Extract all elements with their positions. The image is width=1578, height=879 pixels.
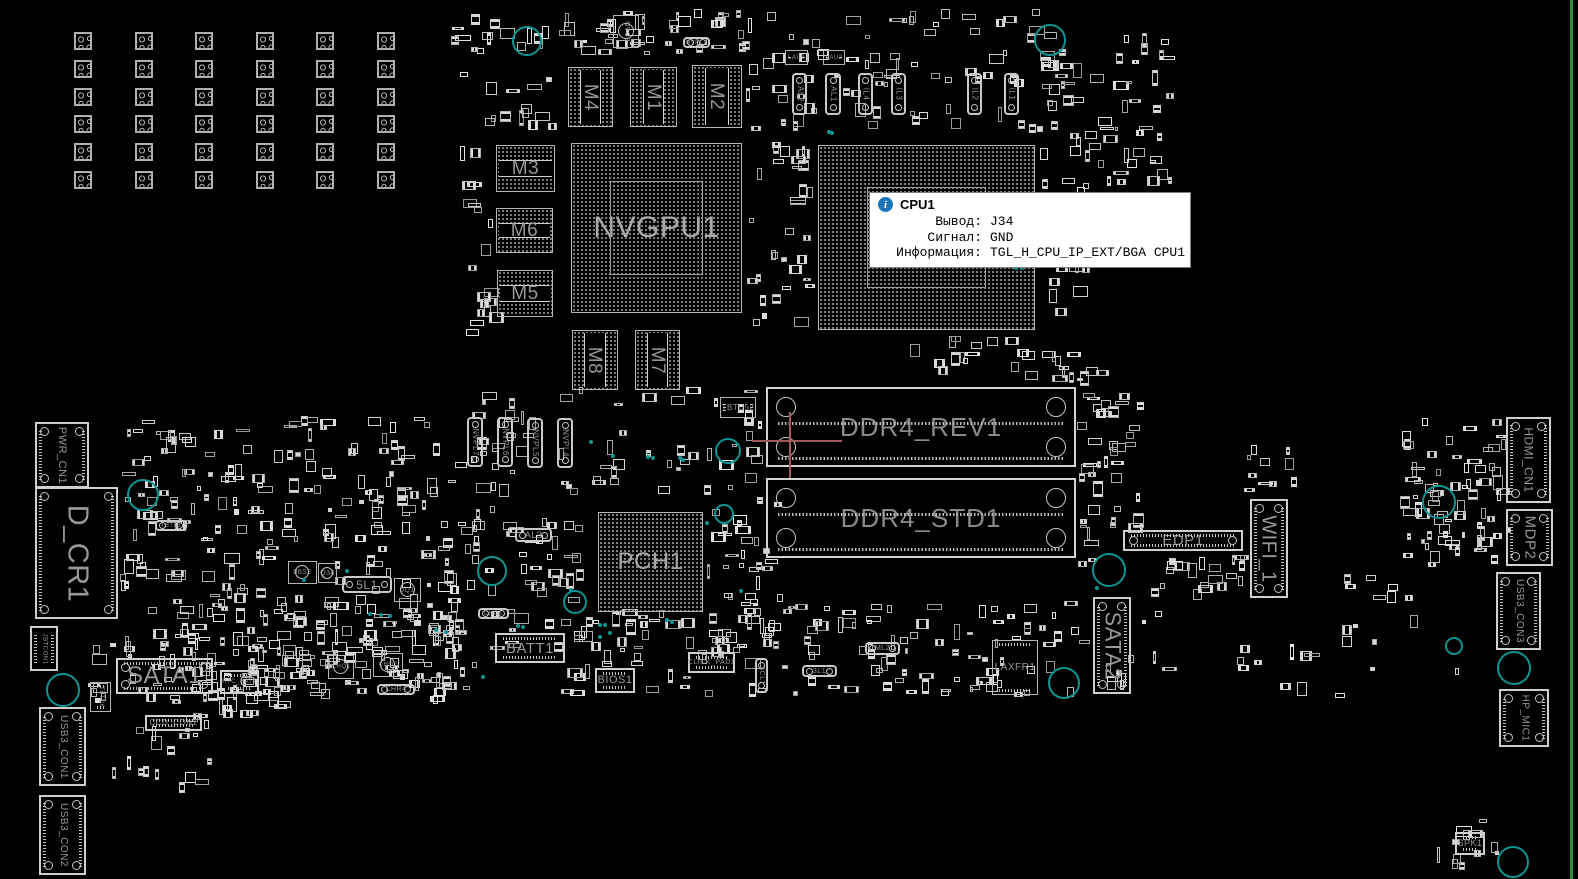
via (1034, 24, 1066, 56)
component-ddr4_rev1[interactable]: DDR4_REV1 (766, 387, 1076, 467)
boardview-canvas[interactable]: i CPU1 Вывод: J34 Сигнал: GND Информация… (0, 0, 1578, 879)
smd-pad (570, 690, 585, 696)
smd-pad (875, 81, 883, 86)
smd-pad (262, 556, 276, 561)
smd-pad (258, 647, 264, 661)
component-usb3_con2[interactable]: USB3_CON2 (39, 795, 86, 875)
component-label: D_CR1 (62, 504, 91, 602)
component-label: 3L1 (813, 668, 826, 675)
component-il2[interactable]: IL2 (967, 73, 982, 115)
smd-pad (1247, 455, 1251, 460)
smd-pad (260, 521, 274, 531)
smd-pad (220, 637, 225, 646)
smd-pad (355, 535, 366, 541)
smd-pad (1039, 625, 1047, 631)
smd-pad (247, 627, 255, 634)
smd-pad (1481, 508, 1486, 518)
smd-pad (754, 608, 761, 616)
smd-pad (305, 449, 314, 460)
pin-row (1503, 697, 1506, 739)
component-label: BATT1 (506, 641, 554, 656)
smd-pad (1428, 562, 1436, 567)
component-m7[interactable]: M7 (635, 330, 680, 390)
smd-pad (906, 690, 917, 694)
component-q34[interactable]: Q34 (318, 563, 337, 583)
component-pwr_cn1[interactable]: PWR_CN1 (35, 422, 89, 488)
test-point (481, 675, 485, 679)
pad-ring (532, 422, 539, 429)
smd-pad (470, 320, 484, 325)
via (1445, 637, 1463, 655)
smd-pad (1291, 477, 1297, 487)
test-point (681, 458, 685, 462)
smd-pad (144, 456, 151, 461)
pin-row (39, 495, 42, 611)
smd-pad (358, 475, 364, 490)
smd-pad (542, 26, 549, 39)
smd-pad (508, 609, 515, 614)
smd-pad (843, 88, 850, 96)
label-band: M6 (499, 223, 550, 239)
smd-pad (277, 701, 291, 709)
mounting-pad (195, 32, 213, 50)
smd-pad (762, 566, 772, 572)
smd-pad (585, 664, 590, 679)
component-nvpl7[interactable]: NVPL7 (467, 417, 483, 467)
smd-pad (1344, 574, 1351, 584)
smd-pad (1060, 63, 1073, 69)
smd-pad (1122, 100, 1128, 113)
component-ddr4_std1[interactable]: DDR4_STD1 (766, 478, 1076, 558)
test-point (598, 623, 602, 627)
mounting-pad (377, 32, 395, 50)
component-3cl1[interactable]: 3CL1 (755, 658, 768, 693)
component-hp_mic1[interactable]: HP_MIC1 (1499, 689, 1549, 747)
smd-pad (1280, 683, 1290, 690)
smd-pad (1114, 506, 1121, 512)
component-m3[interactable]: M3 (496, 145, 555, 192)
pad-ring (380, 657, 395, 672)
smd-pad (510, 470, 514, 474)
smd-pad (1129, 99, 1142, 102)
smd-pad (1087, 527, 1091, 540)
smd-pad (1497, 490, 1501, 500)
smd-pad (1043, 642, 1056, 647)
component-chq2[interactable]: CHQ2 (373, 653, 403, 677)
smd-pad (295, 452, 301, 457)
smd-pad (422, 679, 432, 683)
smd-pad (642, 16, 645, 25)
component-nvpl6[interactable]: NVPL6 (497, 417, 513, 467)
component-label: USB3_CON3 (1514, 579, 1524, 643)
smd-pad (642, 393, 657, 402)
smd-pad (342, 626, 352, 636)
component-ml2[interactable]: ML2 (865, 642, 900, 655)
component-wifi_1[interactable]: WIFI_1 (1250, 499, 1288, 598)
smd-pad (359, 500, 364, 505)
smd-pad (1453, 854, 1460, 865)
pin-row (778, 513, 1064, 516)
component-m4[interactable]: M4 (568, 67, 613, 127)
smd-pad (1425, 543, 1429, 550)
smd-pad (738, 615, 748, 623)
smd-pad (769, 620, 775, 632)
smd-pad (909, 16, 914, 25)
component-batt1[interactable]: BATT1 (495, 633, 565, 663)
component-label: HDMI_CN1 (1523, 427, 1535, 492)
smd-pad (467, 182, 482, 187)
pad-ring (830, 77, 837, 84)
smd-pad (865, 35, 870, 39)
smd-pad (916, 619, 930, 628)
smd-pad (327, 603, 331, 610)
pin-row (696, 666, 727, 669)
smd-pad (126, 641, 131, 657)
smd-pad (970, 28, 980, 35)
smd-pad (519, 552, 527, 557)
smd-pad (468, 203, 481, 207)
component-5l1[interactable]: 5L1 (342, 576, 392, 593)
component-label: HP_MIC1 (1519, 695, 1529, 742)
smd-pad (922, 679, 929, 694)
smd-pad (748, 18, 752, 33)
smd-pad (142, 420, 155, 424)
smd-pad (792, 166, 802, 169)
smd-pad (530, 566, 542, 569)
smd-pad (466, 329, 480, 336)
component-sata2[interactable]: SATA2 (1093, 597, 1131, 694)
smd-pad (287, 450, 293, 459)
component-m2[interactable]: M2 (692, 65, 742, 128)
smd-pad (433, 695, 439, 704)
smd-pad (421, 550, 435, 560)
smd-pad (842, 610, 856, 615)
smd-pad (92, 654, 107, 664)
smd-pad (1076, 137, 1080, 147)
smd-pad (437, 672, 442, 679)
smd-pad (409, 659, 424, 663)
smd-pad (188, 633, 197, 644)
component-label: RTC_BATT (222, 679, 256, 685)
mounting-pad (135, 143, 153, 161)
smd-pad (447, 573, 457, 586)
smd-pad (976, 677, 992, 685)
smd-pad (777, 594, 783, 602)
smd-pad (330, 613, 337, 627)
smd-pad (760, 295, 766, 306)
smd-pad (919, 112, 928, 119)
pad-ring (159, 522, 166, 529)
component-jbtcon1[interactable]: JBTCON1 (30, 626, 58, 671)
component-tbtu6[interactable]: TBTU6 (90, 682, 111, 712)
pad-ring (971, 104, 978, 111)
test-point (670, 620, 674, 624)
smd-pad (274, 609, 283, 614)
component-nvpl1[interactable]: NVPL1 (683, 37, 710, 48)
pin-row (503, 656, 557, 659)
smd-pad (389, 471, 394, 477)
smd-pad (745, 473, 757, 483)
component-lau2[interactable]: LAU2 (823, 50, 845, 65)
smd-pad (222, 583, 231, 591)
smd-pad (537, 588, 547, 596)
pad-ring (532, 457, 539, 464)
test-point (589, 440, 593, 444)
pin-row (826, 57, 829, 58)
smd-pad (873, 106, 881, 118)
smd-pad (873, 72, 883, 78)
smd-pad (233, 497, 238, 506)
component-ccd_con1[interactable]: CCD_CON1 (145, 715, 202, 731)
component-m8[interactable]: M8 (572, 330, 618, 390)
smd-pad (634, 646, 643, 649)
smd-pad (248, 646, 258, 652)
component-al3[interactable]: AL3 (515, 528, 552, 542)
component-tbtu52[interactable]: TBTU52 (720, 397, 756, 418)
smd-pad (793, 691, 799, 696)
component-label: PWR_CN1 (57, 426, 68, 483)
smd-pad (736, 10, 741, 19)
smd-pad (460, 146, 466, 161)
smd-pad (591, 642, 600, 651)
smd-pad (1107, 176, 1112, 186)
mounting-pad (256, 88, 274, 106)
smd-pad (1124, 148, 1129, 164)
smd-pad (1455, 668, 1459, 676)
smd-pad (166, 574, 181, 583)
smd-pad (793, 121, 799, 131)
component-d_cr1[interactable]: D_CR1 (35, 487, 118, 619)
component-laxfr1[interactable]: LAXFR1 (992, 640, 1038, 695)
smd-pad (722, 13, 729, 16)
smd-pad (227, 697, 237, 712)
smd-pad (445, 558, 449, 566)
mounting-pad (256, 60, 274, 78)
component-m6[interactable]: M6 (496, 208, 553, 253)
smd-pad (951, 352, 960, 366)
smd-pad (887, 605, 893, 613)
component-pch1[interactable]: PCH1 (598, 512, 703, 612)
pad-ring (830, 104, 837, 111)
info-value: TGL_H_CPU_IP_EXT/BGA CPU1 (990, 245, 1185, 261)
smd-pad (151, 511, 163, 519)
smd-pad (433, 611, 443, 619)
pin-value: J34 (990, 214, 1013, 230)
mounting-pad (195, 60, 213, 78)
component-nvpl4[interactable]: NVPL4 (557, 418, 573, 468)
smd-pad (1151, 588, 1159, 596)
component-3l1[interactable]: 3L1 (802, 665, 837, 677)
component-chr4[interactable]: CHR4 (377, 684, 415, 695)
pad-ring (176, 522, 183, 529)
via (714, 504, 734, 524)
component-nvgpu1[interactable]: NVGPU1 (571, 143, 742, 313)
pin-row (43, 715, 46, 778)
component-edp1[interactable]: EDP1 (1123, 530, 1243, 551)
smd-pad (295, 595, 303, 603)
smd-pad (488, 219, 493, 228)
smd-pad (1025, 371, 1037, 380)
smd-pad (1422, 418, 1428, 426)
smd-pad (371, 525, 383, 535)
smd-pad (558, 578, 568, 588)
pad-ring (333, 659, 348, 674)
smd-pad (1133, 513, 1144, 528)
smd-pad (876, 668, 883, 672)
smd-pad (204, 494, 208, 501)
smd-pad (160, 641, 170, 648)
mounting-pad (195, 171, 213, 189)
component-mdp2[interactable]: MDP2 (1506, 509, 1553, 566)
smd-pad (460, 72, 468, 77)
smd-pad (294, 536, 298, 542)
smd-pad (559, 30, 571, 36)
smd-pad (803, 39, 809, 46)
component-chq1[interactable]: CHQ1 (328, 655, 354, 679)
component-bios1[interactable]: BIOS1 (595, 668, 635, 693)
test-point (705, 521, 709, 525)
smd-pad (1342, 636, 1353, 647)
component-label: BIOS1 (598, 675, 633, 686)
smd-pad (1055, 356, 1061, 366)
smd-pad (707, 564, 711, 579)
smd-pad (782, 286, 791, 290)
smd-pad (1445, 540, 1460, 546)
component-rtc_batt[interactable]: RTC_BATT (220, 670, 259, 694)
component-tbtl3[interactable]: TBTL3 (155, 520, 187, 531)
smd-pad (725, 554, 739, 558)
smd-pad (132, 459, 145, 465)
smd-pad (378, 546, 387, 552)
pin-row (1500, 580, 1503, 642)
smd-pad (208, 472, 213, 478)
component-chck[interactable]: CHCK (478, 608, 509, 619)
smd-pad (1088, 438, 1101, 446)
smd-pad (945, 77, 952, 83)
test-point (379, 613, 383, 617)
smd-pad (626, 619, 636, 635)
component-al2[interactable]: AL2 (792, 73, 807, 115)
smd-pad (1079, 640, 1090, 643)
mounting-pad (135, 88, 153, 106)
smd-pad (386, 477, 391, 488)
mounting-pad (135, 60, 153, 78)
label-band: M7 (647, 333, 668, 387)
smd-pad (424, 662, 432, 667)
component-sata1[interactable]: SATA1 (116, 658, 213, 694)
smd-pad (1496, 435, 1507, 438)
smd-pad (1480, 526, 1484, 542)
component-hdmi_cn1[interactable]: HDMI_CN1 (1506, 417, 1551, 503)
smd-pad (1018, 120, 1025, 129)
component-m5[interactable]: M5 (497, 270, 553, 317)
smd-pad (933, 22, 940, 26)
mounting-pad (377, 143, 395, 161)
smd-pad (378, 495, 384, 505)
pad-ring (1046, 397, 1066, 417)
smd-pad (1467, 459, 1482, 464)
smd-pad (808, 676, 816, 686)
pad-ring (862, 104, 869, 111)
test-point (611, 454, 615, 458)
smd-pad (704, 485, 710, 495)
smd-pad (366, 619, 372, 627)
label-band: M5 (500, 285, 550, 301)
smd-pad (576, 569, 584, 582)
smd-pad (277, 631, 292, 640)
smd-pad (658, 486, 670, 494)
component-5q1[interactable]: 5Q1 (394, 578, 421, 602)
smd-pad (414, 620, 420, 626)
smd-pad (867, 620, 872, 624)
component-al1[interactable]: AL1 (825, 73, 841, 115)
component-il4[interactable]: IL4 (858, 73, 873, 115)
smd-pad (124, 581, 129, 589)
smd-pad (902, 18, 907, 23)
smd-pad (1040, 148, 1048, 160)
pin-row (750, 404, 753, 411)
pin-row (696, 656, 727, 659)
smd-pad (686, 637, 694, 649)
smd-pad (1085, 131, 1096, 139)
smd-pad (912, 116, 920, 125)
smd-pad (199, 604, 203, 618)
component-spk1[interactable]: SPK1 (1455, 832, 1485, 855)
pad-ring (776, 528, 796, 548)
smd-pad (1290, 644, 1294, 660)
smd-pad (195, 779, 209, 785)
component-lau3[interactable]: LAU3 (785, 50, 808, 65)
test-point (608, 631, 612, 635)
test-point (521, 625, 525, 629)
smd-pad (1437, 847, 1440, 863)
smd-pad (1083, 393, 1095, 398)
smd-pad (760, 618, 765, 634)
component-click_pad1[interactable]: CLICK_PAD1 (688, 652, 735, 673)
smd-pad (552, 536, 557, 550)
smd-pad (1260, 458, 1270, 465)
via (46, 673, 80, 707)
smd-pad (397, 487, 412, 490)
smd-pad (1111, 461, 1124, 465)
component-nvc2[interactable]: NVC2 (613, 15, 639, 48)
pin-row (778, 548, 1064, 551)
mounting-pad (74, 60, 92, 78)
smd-pad (634, 653, 641, 661)
mounting-pad (195, 143, 213, 161)
smd-pad (910, 632, 918, 638)
component-nvpl5[interactable]: NVPL5 (527, 418, 543, 468)
smd-pad (683, 676, 692, 679)
component-usb3_con3[interactable]: USB3_CON3 (1496, 572, 1541, 650)
mounting-pad (377, 88, 395, 106)
smd-pad (310, 692, 323, 697)
smd-pad (910, 111, 914, 115)
smd-pad (1403, 441, 1413, 449)
smd-pad (546, 77, 551, 82)
smd-pad (1162, 667, 1177, 671)
smd-pad (1126, 432, 1134, 440)
smd-pad (900, 637, 908, 644)
component-il1[interactable]: IL1 (1004, 73, 1019, 115)
component-il3[interactable]: IL3 (891, 73, 906, 115)
component-usb3_con1[interactable]: USB3_CON1 (39, 707, 86, 786)
component-m1[interactable]: M1 (630, 67, 677, 127)
smd-pad (402, 512, 410, 515)
smd-pad (1085, 150, 1090, 161)
smd-pad (560, 394, 574, 402)
test-point (739, 589, 743, 593)
